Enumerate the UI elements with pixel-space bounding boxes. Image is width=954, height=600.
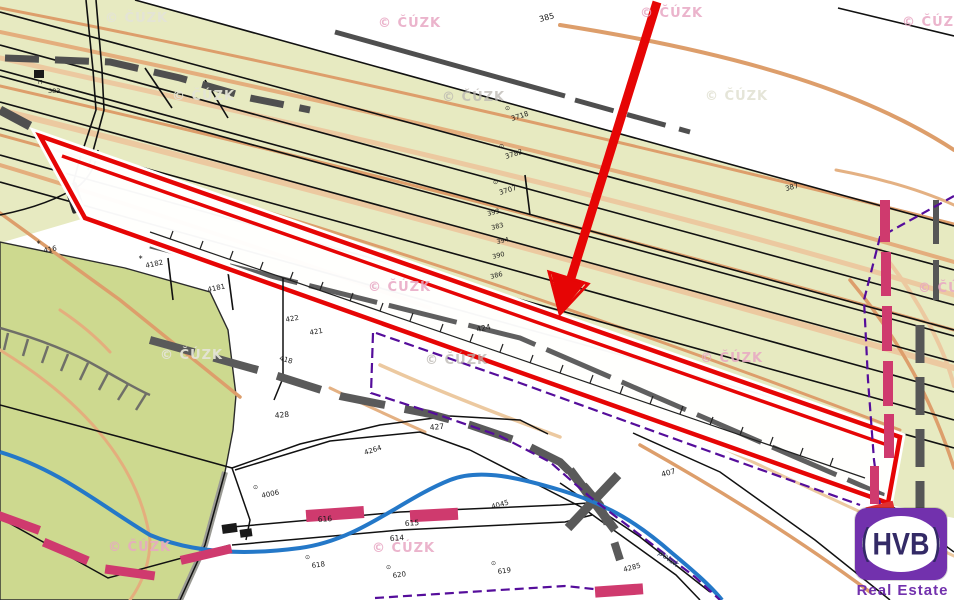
map-symbol: ⊙: [305, 554, 310, 561]
cuzk-watermark: © ČÚZK: [160, 347, 223, 363]
map-symbol: ⊙: [253, 484, 258, 491]
hvb-logo-box: ( HVB ): [855, 508, 947, 580]
cadastral-map: © ČÚZK© ČÚZK© ČÚZK© ČÚZK© ČÚZK© ČÚZK© ČÚ…: [0, 0, 954, 600]
map-symbol: ∗: [138, 254, 143, 261]
cuzk-watermark: © ČÚZK: [108, 539, 171, 555]
hvb-logo-text: HVB: [873, 526, 930, 562]
cuzk-watermark: © ČÚZK: [442, 89, 505, 105]
map-symbol: ⊓: [38, 79, 43, 86]
cuzk-watermark: © ČÚZK: [378, 15, 441, 31]
cuzk-watermark: © ČÚZK: [372, 540, 435, 556]
cuzk-watermark: © ČÚZK: [105, 10, 168, 26]
map-symbol: ⊙: [499, 143, 504, 150]
cuzk-watermark: © ČÚZK: [640, 5, 703, 21]
building-block: [240, 528, 253, 538]
hvb-bracket-left: (: [860, 521, 872, 567]
hvb-logo: ( HVB ) Real Estate: [851, 508, 954, 600]
cuzk-watermark: © ČÚZK: [918, 280, 954, 296]
hvb-logo-subtext: Real Estate: [851, 582, 954, 599]
hvb-bracket-right: ): [931, 521, 943, 567]
cuzk-watermark: © ČÚZK: [705, 88, 768, 104]
map-symbol: ⊙: [386, 564, 391, 571]
parcel-label: 616: [318, 514, 333, 524]
parcel-label: 428: [274, 410, 289, 420]
building-block: [34, 70, 44, 78]
map-symbol: ⊙: [493, 179, 498, 186]
map-symbol: ⊙: [491, 560, 496, 567]
parcel-label: 427: [429, 422, 444, 432]
cuzk-watermark: © ČÚZK: [368, 279, 431, 295]
cadastral-map-page: { "map": { "watermark_text": "© ČÚZK", "…: [0, 0, 954, 600]
map-symbol: ∗: [36, 239, 41, 246]
hvb-logo-ellipse: ( HVB ): [862, 516, 940, 572]
cuzk-watermark: © ČÚZK: [172, 88, 235, 104]
parcel-label: 615: [405, 518, 420, 528]
parcel-label: 383: [48, 87, 60, 95]
parcel-label: 614: [390, 533, 405, 543]
map-symbol: ⊙: [505, 105, 510, 112]
cuzk-watermark: © ČÚZK: [902, 14, 954, 30]
cuzk-watermark: © ČÚZK: [700, 350, 763, 366]
cuzk-watermark: © ČÚZK: [425, 352, 488, 368]
